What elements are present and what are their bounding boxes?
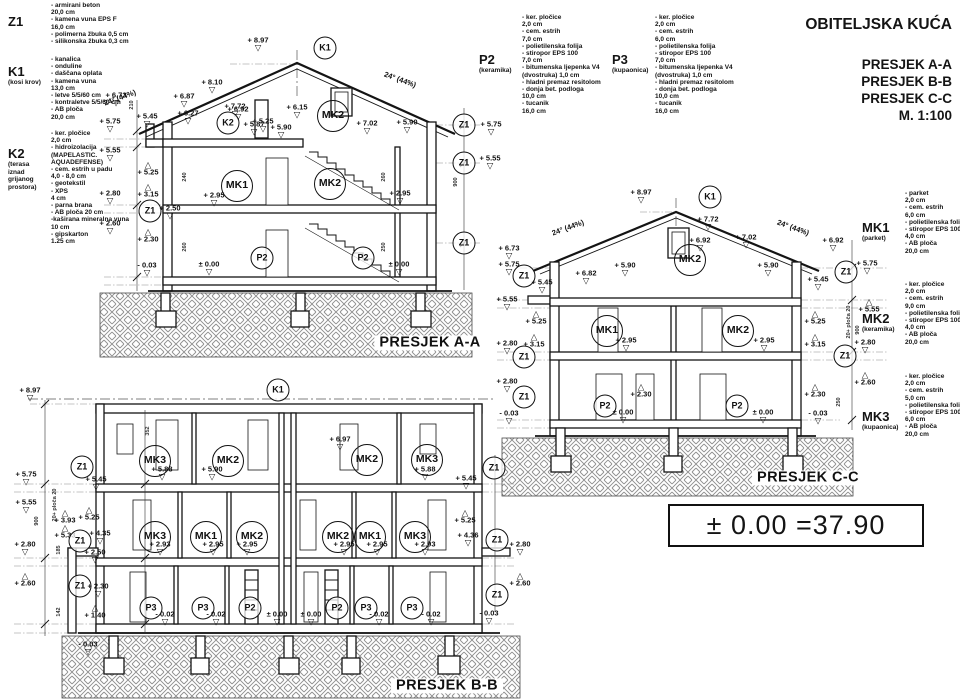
legend-k2-body: - ker. pločice 2,0 cm - hidroizolacija (… xyxy=(51,130,147,245)
elevation-marker: + 2.60 xyxy=(14,573,35,588)
legend-mk2-sub: (keramika) xyxy=(862,326,898,334)
elevation-marker: + 2.95 xyxy=(236,541,257,556)
elevation-marker: + 5.88 xyxy=(151,466,172,481)
dimension-label: 20+ ploča 20 xyxy=(53,489,59,522)
title-section-c: PRESJEK C-C xyxy=(805,90,952,107)
ref-circle: Z1 xyxy=(486,584,509,607)
ref-circle: MK2 xyxy=(351,444,383,476)
legend-mk1-sub: (parket) xyxy=(862,235,898,243)
elevation-marker: - 0.02 xyxy=(155,611,174,626)
legend-p2: P2 (keramika) - ker. pločice 2,0 cm - ce… xyxy=(479,14,630,115)
legend-mk3-code: MK3 xyxy=(862,409,898,424)
legend-k2-code: K2 xyxy=(8,146,44,161)
elevation-marker: + 2.95 xyxy=(202,541,223,556)
elevation-marker: + 4.36 xyxy=(457,532,478,547)
project-title: OBITELJSKA KUĆA xyxy=(805,16,952,34)
elevation-marker: + 2.93 xyxy=(414,541,435,556)
legend-z1-code: Z1 xyxy=(8,14,44,29)
elevation-marker: + 5.75 xyxy=(15,471,36,486)
elevation-marker: + 5.45 xyxy=(85,476,106,491)
legend-z1-body: - armirani beton 20,0 cm - kamena vuna E… xyxy=(51,2,147,45)
legend-mk1-body: - parket 2,0 cm - cem. estrih 6,0 cm - p… xyxy=(905,190,960,255)
elevation-marker: + 5.55 xyxy=(15,499,36,514)
legend-mk2-code: MK2 xyxy=(862,311,898,326)
dimension-label: 185 xyxy=(57,545,63,554)
legend-k2-sub: (terasa iznad grijanog prostora) xyxy=(8,161,44,191)
elevation-marker: + 8.97 xyxy=(19,387,40,402)
title-section-b: PRESJEK B-B xyxy=(805,73,952,90)
elevation-marker: + 6.97 xyxy=(329,436,350,451)
elevation-marker: ± 0.00 xyxy=(301,611,322,626)
elevation-marker: - 0.03 xyxy=(479,610,498,625)
ref-circle: P3 xyxy=(401,597,424,620)
datum-level-box: ± 0.00 =37.90 xyxy=(668,504,924,547)
legend-z1: Z1 - armirani beton 20,0 cm - kamena vun… xyxy=(8,2,147,45)
legend-k1: K1 (kosi krov) - kanalica - onduline - d… xyxy=(8,56,147,121)
elevation-marker: + 2.60 xyxy=(509,573,530,588)
elevation-marker: - 0.03 xyxy=(78,641,97,656)
elevation-marker: + 2.50 xyxy=(84,549,105,564)
elevation-marker: + 5.88 xyxy=(414,466,435,481)
elevation-marker: + 4.35 xyxy=(89,530,110,545)
elevation-marker: + 5.25 xyxy=(78,507,99,522)
title-block: OBITELJSKA KUĆA PRESJEK A-A PRESJEK B-B … xyxy=(805,16,952,124)
legend-p2-code: P2 xyxy=(479,52,515,67)
elevation-marker: + 2.80 xyxy=(509,541,530,556)
elevation-marker: - 0.02 xyxy=(369,611,388,626)
legend-mk2-body: - ker. pločice 2,0 cm - cem. estrih 9,0 … xyxy=(905,281,960,346)
elevation-marker: + 5.45 xyxy=(455,475,476,490)
dimension-label: 352 xyxy=(146,426,152,435)
dimension-label: 900 xyxy=(35,516,41,525)
legend-mk3-sub: (kupaonica) xyxy=(862,424,898,432)
title-section-a: PRESJEK A-A xyxy=(805,56,952,73)
dimension-label: 142 xyxy=(57,607,63,616)
legend-p3: P3 (kupaonica) - ker. pločice 2,0 cm - c… xyxy=(612,14,763,115)
elevation-marker: + 2.80 xyxy=(14,541,35,556)
elevation-marker: + 5.90 xyxy=(201,466,222,481)
title-scale: M. 1:100 xyxy=(805,107,952,124)
elevation-marker: + 1.40 xyxy=(84,605,105,620)
elevation-marker: + 5.25 xyxy=(454,510,475,525)
legend-k1-sub: (kosi krov) xyxy=(8,79,44,87)
legend-k1-code: K1 xyxy=(8,64,44,79)
elevation-marker: - 0.02 xyxy=(421,611,440,626)
legend-p3-sub: (kupaonica) xyxy=(612,67,648,75)
ref-circle: P2 xyxy=(326,597,349,620)
ref-circle: Z1 xyxy=(486,529,509,552)
elevation-marker: + 2.93 xyxy=(149,541,170,556)
legend-p2-sub: (keramika) xyxy=(479,67,515,75)
legend-p3-body: - ker. pločice 2,0 cm - cem. estrih 6,0 … xyxy=(655,14,763,115)
ref-circle: Z1 xyxy=(483,457,506,480)
legend-mk3-body: - ker. pločice 2,0 cm - cem. estrih 5,0 … xyxy=(905,373,960,438)
legend-p3-code: P3 xyxy=(612,52,648,67)
legend-mk2: MK2 (keramika) - ker. pločice 2,0 cm - c… xyxy=(862,281,960,346)
legend-k2: K2 (terasa iznad grijanog prostora) - ke… xyxy=(8,130,147,245)
legend-mk1-code: MK1 xyxy=(862,220,898,235)
legend-mk3: MK3 (kupaonica) - ker. pločice 2,0 cm - … xyxy=(862,373,960,438)
ref-circle: P2 xyxy=(239,597,262,620)
legend-mk1: MK1 (parket) - parket 2,0 cm - cem. estr… xyxy=(862,190,960,255)
ref-circle: K1 xyxy=(267,379,290,402)
elevation-marker: + 2.95 xyxy=(366,541,387,556)
elevation-marker: + 2.95 xyxy=(333,541,354,556)
section-caption: PRESJEK B-B xyxy=(391,678,503,693)
legend-k1-body: - kanalica - onduline - daščana oplata -… xyxy=(51,56,147,121)
elevation-marker: ± 0.00 xyxy=(267,611,288,626)
drawing-sheet: + 8.97K124° (44%)24° (44%)+ 8.10+ 7.72+ … xyxy=(0,0,960,699)
elevation-marker: - 0.02 xyxy=(206,611,225,626)
elevation-marker: + 2.30 xyxy=(87,583,108,598)
